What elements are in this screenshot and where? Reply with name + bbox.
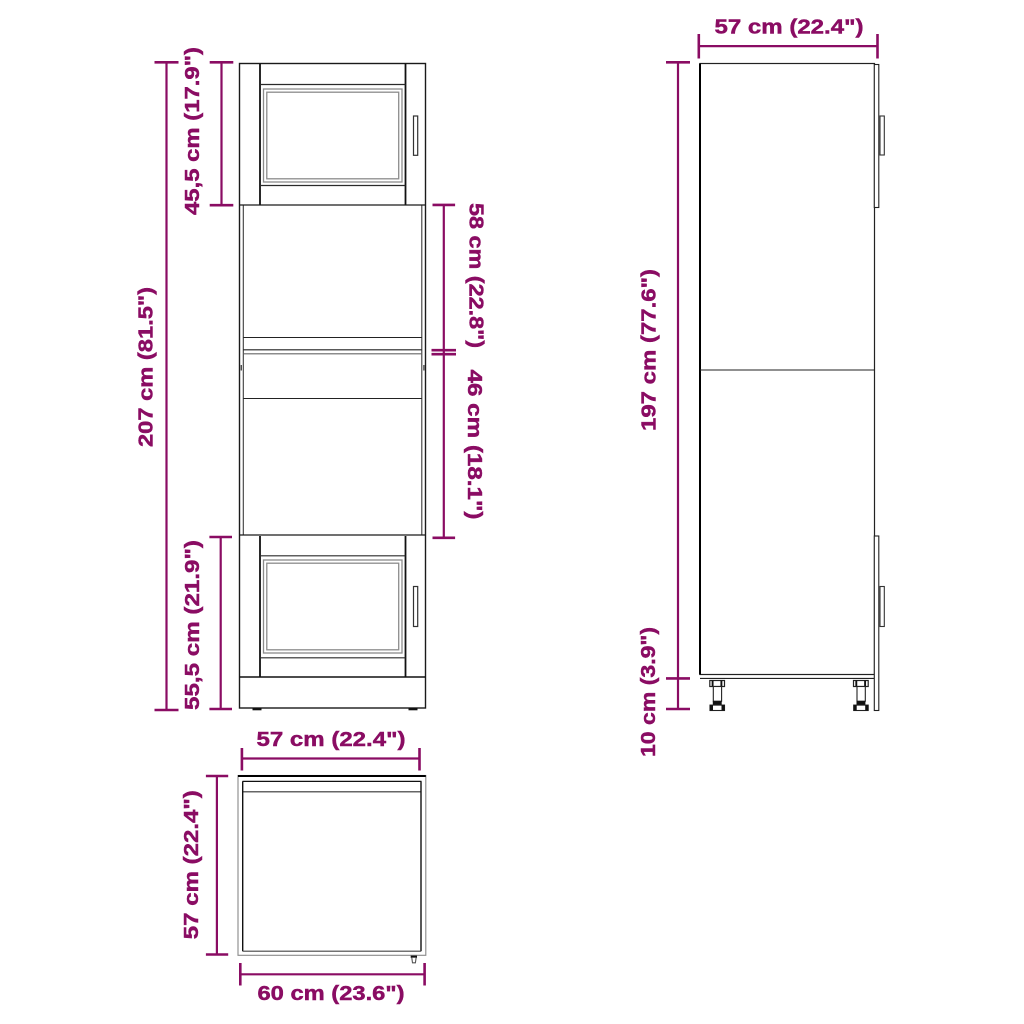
svg-text:60 cm (23.6"): 60 cm (23.6") <box>258 982 405 1005</box>
svg-text:207 cm (81.5"): 207 cm (81.5") <box>135 287 158 447</box>
svg-text:55,5 cm (21.9"): 55,5 cm (21.9") <box>181 540 204 710</box>
svg-text:57 cm (22.4"): 57 cm (22.4") <box>715 16 864 39</box>
svg-text:57 cm (22.4"): 57 cm (22.4") <box>257 728 406 751</box>
svg-text:58 cm (22.8"): 58 cm (22.8") <box>465 203 488 348</box>
svg-text:45,5 cm (17.9"): 45,5 cm (17.9") <box>181 47 204 215</box>
svg-text:46 cm (18.1"): 46 cm (18.1") <box>463 370 486 520</box>
svg-text:197 cm (77.6"): 197 cm (77.6") <box>638 269 661 431</box>
svg-text:10 cm (3.9"): 10 cm (3.9") <box>637 627 660 757</box>
svg-text:57 cm (22.4"): 57 cm (22.4") <box>180 790 203 939</box>
